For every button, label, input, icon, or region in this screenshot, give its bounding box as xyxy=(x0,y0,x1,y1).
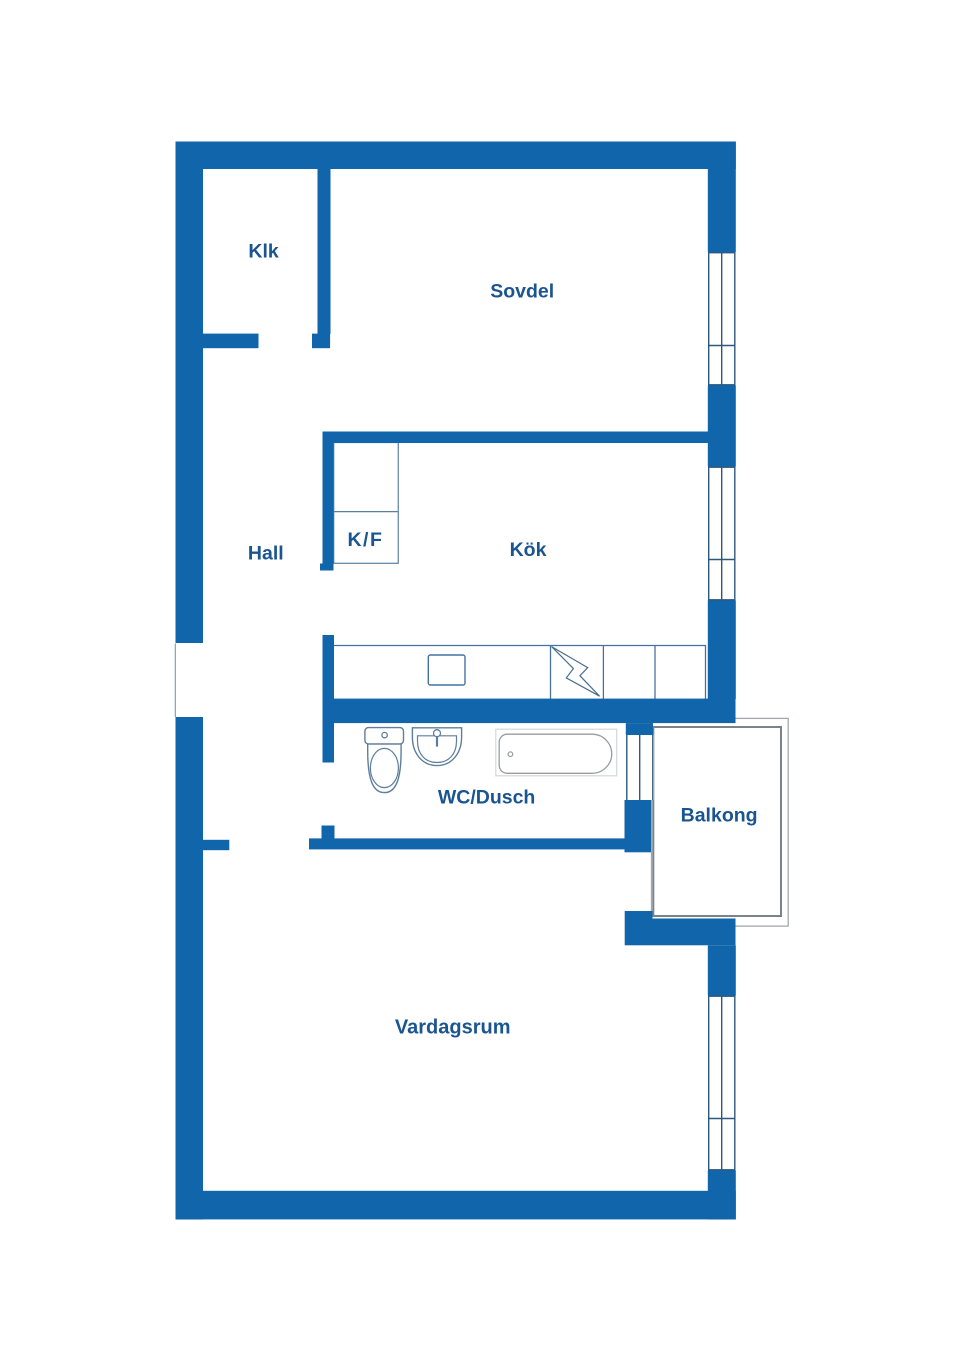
svg-text:Sovdel: Sovdel xyxy=(490,281,554,303)
svg-text:Kök: Kök xyxy=(510,539,547,561)
svg-text:Vardagsrum: Vardagsrum xyxy=(395,1016,511,1038)
svg-text:K/F: K/F xyxy=(347,529,383,551)
svg-text:WC/Dusch: WC/Dusch xyxy=(438,787,536,809)
svg-text:Balkong: Balkong xyxy=(681,804,758,826)
svg-text:Klk: Klk xyxy=(248,240,279,262)
svg-text:Hall: Hall xyxy=(248,543,284,565)
